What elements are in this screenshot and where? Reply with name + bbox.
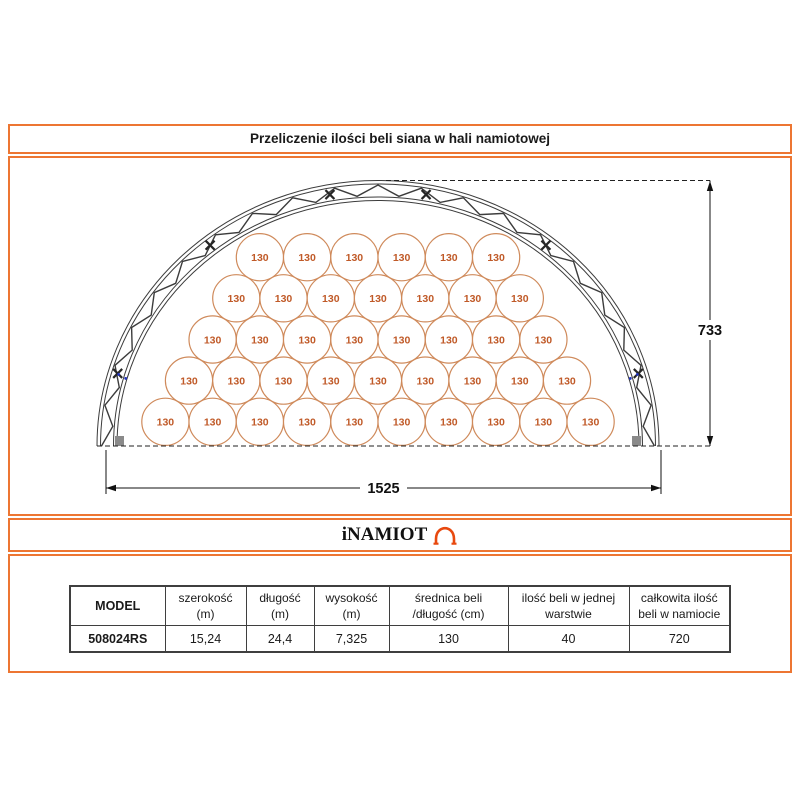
bale-diameter-label: 130 <box>346 252 364 264</box>
bale-diameter-label: 130 <box>511 375 529 387</box>
bales-group: 1301301301301301301301301301301301301301… <box>142 234 614 446</box>
bale-diameter-label: 130 <box>298 334 316 346</box>
col-header-calkowita: całkowita ilośćbeli w namiocie <box>629 586 730 626</box>
bale-diameter-label: 130 <box>157 417 175 429</box>
bale-diameter-label: 130 <box>298 252 316 264</box>
cell-wysokosc: 7,325 <box>314 626 389 653</box>
truss-foot-right <box>632 436 641 446</box>
bale-diameter-label: 130 <box>535 334 553 346</box>
bale-diameter-label: 130 <box>322 375 340 387</box>
bale-diameter-label: 130 <box>558 375 576 387</box>
col-header-dlugosc: długość(m) <box>246 586 314 626</box>
table-box: MODEL szerokość(m) długość(m) wysokość(m… <box>8 554 792 673</box>
bale-diameter-label: 130 <box>298 417 316 429</box>
spec-table: MODEL szerokość(m) długość(m) wysokość(m… <box>69 585 731 653</box>
table-data-row: 508024RS 15,24 24,4 7,325 130 40 720 <box>70 626 730 653</box>
table-header-row: MODEL szerokość(m) długość(m) wysokość(m… <box>70 586 730 626</box>
col-header-model: MODEL <box>70 586 165 626</box>
diagram-box: 1301301301301301301301301301301301301301… <box>8 156 792 516</box>
cell-szerokosc: 15,24 <box>165 626 246 653</box>
cell-ilosc-warstwa: 40 <box>508 626 629 653</box>
bale-diameter-label: 130 <box>582 417 600 429</box>
bale-diameter-label: 130 <box>204 417 222 429</box>
bale-diameter-label: 130 <box>251 417 269 429</box>
width-dimension: 1525 <box>106 450 661 497</box>
bale-diameter-label: 130 <box>487 252 505 264</box>
bale-diameter-label: 130 <box>440 334 458 346</box>
bale-diameter-label: 130 <box>369 293 387 305</box>
bale-diameter-label: 130 <box>204 334 222 346</box>
bale-diameter-label: 130 <box>417 293 435 305</box>
bale-diameter-label: 130 <box>393 417 411 429</box>
bale-diameter-label: 130 <box>511 293 529 305</box>
col-header-szerokosc: szerokość(m) <box>165 586 246 626</box>
bale-diameter-label: 130 <box>464 375 482 387</box>
bale-diameter-label: 130 <box>275 375 293 387</box>
tent-icon <box>432 525 458 545</box>
bale-diameter-label: 130 <box>228 375 246 387</box>
cell-model: 508024RS <box>70 626 165 653</box>
bale-diameter-label: 130 <box>369 375 387 387</box>
bale-diameter-label: 130 <box>346 334 364 346</box>
bale-diameter-label: 130 <box>535 417 553 429</box>
bale-diameter-label: 130 <box>464 293 482 305</box>
tent-cross-section-diagram: 1301301301301301301301301301301301301301… <box>10 158 790 514</box>
height-dim-label: 733 <box>698 323 722 339</box>
cell-srednica: 130 <box>389 626 508 653</box>
bale-diameter-label: 130 <box>393 252 411 264</box>
truss-joint <box>206 241 215 250</box>
col-header-wysokosc: wysokość(m) <box>314 586 389 626</box>
page-title: Przeliczenie ilości beli siana w hali na… <box>10 126 790 152</box>
bale-diameter-label: 130 <box>322 293 340 305</box>
bale-diameter-label: 130 <box>440 252 458 264</box>
cell-dlugosc: 24,4 <box>246 626 314 653</box>
bale-diameter-label: 130 <box>487 334 505 346</box>
col-header-srednica: średnica beli/długość (cm) <box>389 586 508 626</box>
bale-diameter-label: 130 <box>346 417 364 429</box>
title-box: Przeliczenie ilości beli siana w hali na… <box>8 124 792 154</box>
bale-diameter-label: 130 <box>251 252 269 264</box>
logo-bar: iNAMIOT <box>8 518 792 552</box>
bale-diameter-label: 130 <box>440 417 458 429</box>
truss-joint <box>541 241 550 250</box>
logo: iNAMIOT <box>342 524 459 546</box>
bale-diameter-label: 130 <box>393 334 411 346</box>
cell-calkowita: 720 <box>629 626 730 653</box>
width-dim-label: 1525 <box>367 481 399 497</box>
page: Przeliczenie ilości beli siana w hali na… <box>0 0 800 800</box>
bale-diameter-label: 130 <box>275 293 293 305</box>
bale-diameter-label: 130 <box>180 375 198 387</box>
logo-text: iNAMIOT <box>342 524 428 546</box>
truss-foot-left <box>115 436 124 446</box>
bale-diameter-label: 130 <box>228 293 246 305</box>
height-dimension: 733 <box>695 181 725 447</box>
col-header-ilosc-warstwa: ilość beli w jednejwarstwie <box>508 586 629 626</box>
bale-diameter-label: 130 <box>417 375 435 387</box>
bale-diameter-label: 130 <box>251 334 269 346</box>
bale-diameter-label: 130 <box>487 417 505 429</box>
